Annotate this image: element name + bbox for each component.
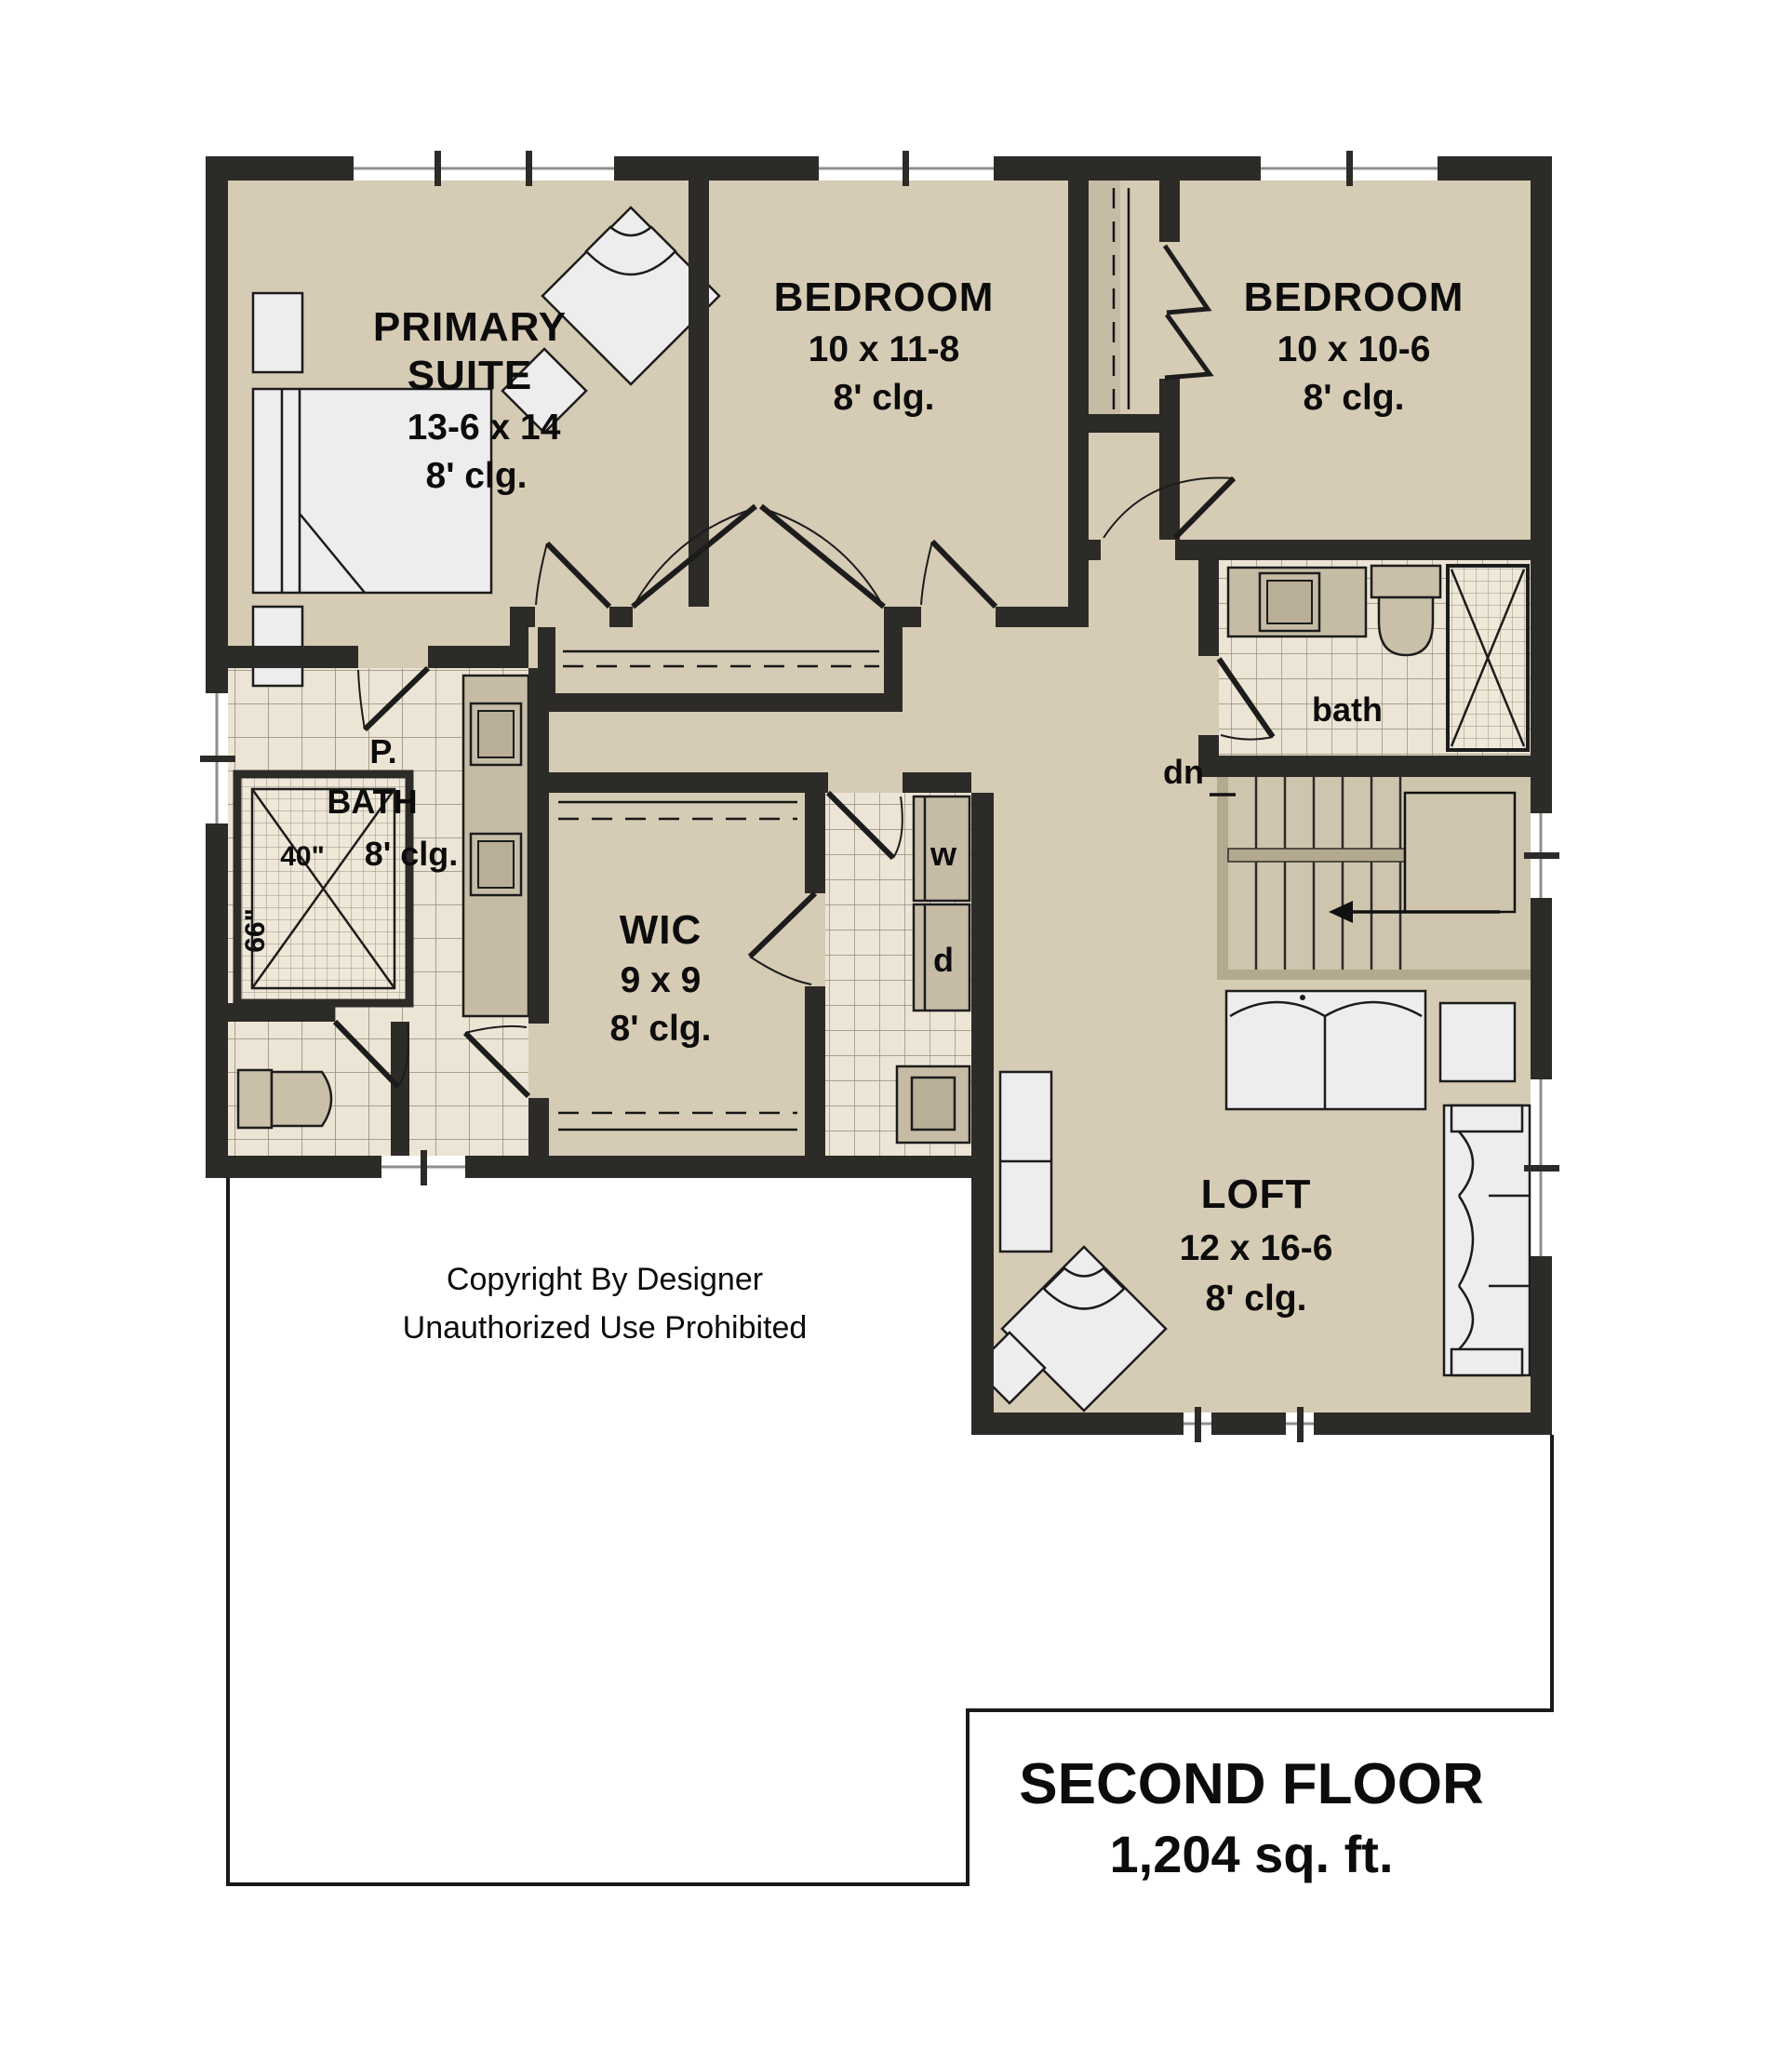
shower-width-label: 40" bbox=[280, 841, 325, 872]
floor-area: 1,204 sq. ft. bbox=[1109, 1825, 1393, 1883]
pbath-vanity bbox=[463, 676, 528, 1016]
loft-loveseat bbox=[1226, 991, 1425, 1109]
primary-suite-dim: 13-6 x 14 bbox=[408, 408, 561, 448]
bedroom2-label: BEDROOM bbox=[1244, 274, 1464, 320]
floor-plan-drawing: PRIMARY SUITE 13-6 x 14 8' clg. BEDROOM … bbox=[0, 0, 1792, 2062]
pbath-toilet bbox=[238, 1070, 331, 1128]
nightstand-top bbox=[253, 293, 302, 372]
bath-label: bath bbox=[1312, 690, 1383, 729]
copyright-line2: Unauthorized Use Prohibited bbox=[403, 1310, 808, 1346]
primary-suite-label: PRIMARY bbox=[373, 304, 567, 350]
loft-console bbox=[1000, 1072, 1051, 1252]
stair-floor bbox=[1219, 777, 1531, 979]
pbath-clg: 8' clg. bbox=[365, 835, 459, 873]
pbath-label-p: P. bbox=[369, 732, 396, 770]
loft-sofa bbox=[1444, 1105, 1530, 1375]
pbath-label-bath: BATH bbox=[327, 783, 417, 821]
bedroom2-clg: 8' clg. bbox=[1304, 378, 1405, 418]
wic-clg: 8' clg. bbox=[610, 1009, 712, 1049]
copyright-line1: Copyright By Designer bbox=[447, 1262, 763, 1297]
loft-clg: 8' clg. bbox=[1206, 1279, 1307, 1319]
floor-plan-page: PRIMARY SUITE 13-6 x 14 8' clg. BEDROOM … bbox=[0, 0, 1792, 2062]
loft-label: LOFT bbox=[1201, 1172, 1312, 1217]
bath-toilet bbox=[1371, 566, 1440, 655]
wic-label: WIC bbox=[620, 907, 702, 953]
bedroom2-dim: 10 x 10-6 bbox=[1277, 329, 1431, 369]
floor-title: SECOND FLOOR bbox=[1019, 1752, 1483, 1816]
primary-suite-clg: 8' clg. bbox=[426, 456, 528, 496]
wic-dim: 9 x 9 bbox=[621, 960, 702, 1000]
bedroom1-label: BEDROOM bbox=[774, 274, 995, 320]
bedroom1-clg: 8' clg. bbox=[834, 378, 935, 418]
washer-label: w bbox=[929, 835, 957, 873]
bath-tub-shower bbox=[1448, 566, 1528, 750]
loft-side-table bbox=[1440, 1003, 1515, 1081]
loft-dim: 12 x 16-6 bbox=[1180, 1228, 1333, 1268]
bath-vanity bbox=[1228, 568, 1366, 636]
bedroom1-dim: 10 x 11-8 bbox=[809, 329, 960, 369]
stairs-dn-label: dn bbox=[1163, 753, 1204, 791]
shower-depth-label: 66" bbox=[240, 908, 271, 953]
dryer-label: d bbox=[933, 941, 954, 979]
utility-sink bbox=[897, 1066, 970, 1143]
primary-suite-label2: SUITE bbox=[408, 353, 533, 398]
